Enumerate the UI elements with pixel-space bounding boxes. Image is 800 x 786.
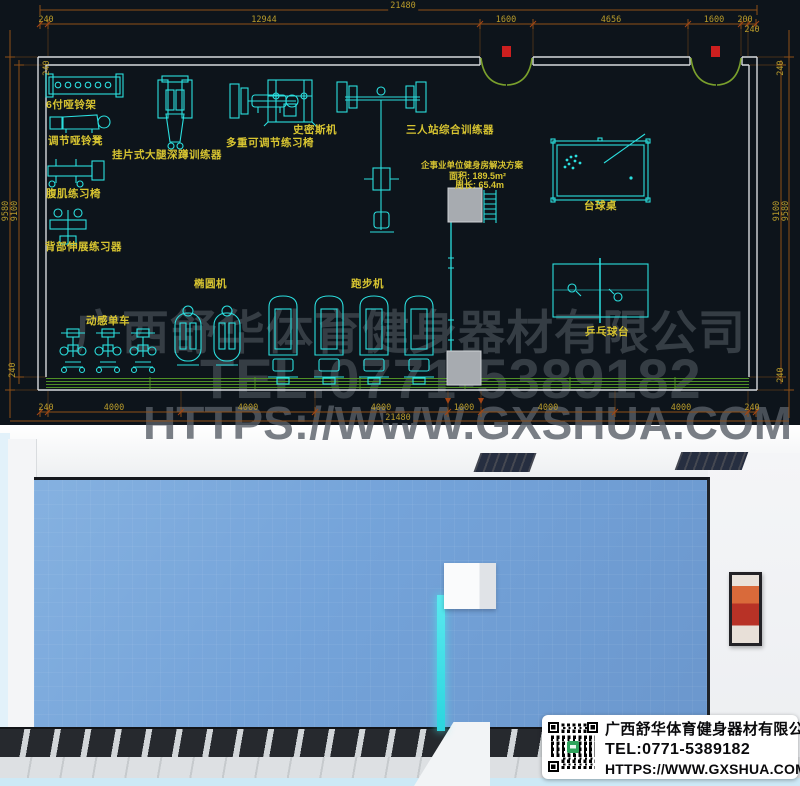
dim-top-4: 1600 [704, 15, 724, 25]
dim-bottom-0: 240 [38, 403, 53, 413]
floor-plan-drawing [0, 0, 800, 425]
label-ab-chair: 腹肌练习椅 [46, 186, 101, 201]
plan-multi-adjustable-bench [230, 84, 298, 118]
company-tel: TEL:0771-5389182 [605, 741, 800, 759]
dim-bottom-2: 4000 [238, 403, 258, 413]
plan-adjustable-bench [50, 115, 110, 133]
company-info-card: 广西舒华体育健身器材有限公司 TEL:0771-5389182 HTTPS://… [542, 715, 798, 779]
render-view: 广西舒华体育健身器材有限公司 TEL:0771-5389182 HTTPS://… [0, 425, 800, 786]
door-leaf-arcs [481, 58, 741, 85]
plan-ab-chair [48, 159, 104, 187]
plan-pingpong-table [553, 258, 648, 323]
dim-right-wall-bottom: 240 [776, 355, 786, 395]
render-bottom-band [0, 778, 800, 786]
render-door-panel-1 [474, 453, 537, 472]
walls [38, 57, 757, 390]
dim-bottom-3: 4000 [371, 403, 391, 413]
label-smith-machine: 史密斯机 [293, 122, 337, 137]
dim-top-1: 12944 [251, 15, 277, 25]
render-wall-tv [729, 572, 762, 646]
label-spin-bike: 动感单车 [86, 313, 130, 328]
door-marker-1 [502, 46, 511, 57]
dim-left-wall-bottom: 240 [8, 350, 18, 390]
equipment-linework [46, 74, 650, 384]
company-name: 广西舒华体育健身器材有限公司 [605, 718, 800, 739]
label-treadmill: 跑步机 [351, 276, 384, 291]
window-wall-hatch [46, 377, 749, 389]
label-dumbbell-rack: 6付哑铃架 [46, 97, 96, 112]
qr-code [548, 722, 598, 772]
dim-bottom-5: 4000 [538, 403, 558, 413]
label-pingpong-table: 乒乓球台 [585, 324, 629, 339]
plan-spin-bikes [60, 329, 156, 373]
dim-bottom-4: 1000 [454, 403, 474, 413]
door-marker-2 [711, 46, 720, 57]
plan-squat-trainer [158, 76, 192, 149]
label-squat-trainer: 挂片式大腿深蹲训练器 [112, 147, 222, 162]
label-back-extension: 背部伸展练习器 [45, 239, 122, 254]
plan-treadmills [268, 296, 434, 384]
plan-column-box [448, 188, 482, 222]
company-url: HTTPS://WWW.GXSHUA.COM [605, 761, 800, 777]
plan-ellipticals [175, 306, 240, 365]
plan-dumbbell-rack [46, 74, 123, 97]
dim-total-top: 21480 [388, 1, 418, 11]
dim-top-0: 240 [38, 15, 53, 25]
render-glow-divider [437, 595, 445, 731]
render-blue-floor [34, 477, 710, 729]
gym-plan-page: 广西舒华体育健身器材有限公司 TEL:0771-5389182 HTTPS://… [0, 0, 800, 786]
plan-column-box-2 [447, 351, 481, 385]
plan-smith-machine [264, 80, 316, 126]
dim-left-wall-top: 240 [42, 48, 52, 88]
floor-plan: 6付哑铃架 调节哑铃凳 腹肌练习椅 背部伸展练习器 挂片式大腿深蹲训练器 多重可… [0, 0, 800, 425]
render-column [444, 563, 496, 609]
plan-three-station-trainer [337, 82, 426, 232]
dim-left-inner: 9100 [10, 191, 20, 231]
label-adjustable-dumbbell-bench: 调节哑铃凳 [48, 133, 103, 148]
dim-top-3: 4656 [601, 15, 621, 25]
dim-right-wall-top: 240 [776, 48, 786, 88]
dim-bottom-1: 4000 [104, 403, 124, 413]
render-door-panel-2 [675, 452, 749, 470]
dim-top-2: 1600 [496, 15, 516, 25]
label-elliptical: 椭圆机 [194, 276, 227, 291]
plan-pool-table [551, 134, 650, 203]
label-pool-table: 台球桌 [584, 198, 617, 213]
dim-top-6: 240 [744, 25, 759, 35]
solution-perimeter: 周长: 65.4m [455, 178, 504, 191]
label-multi-adjustable-bench: 多重可调节练习椅 [226, 135, 314, 150]
dim-right-outer: 9580 [781, 191, 791, 231]
dim-total-bottom: 21480 [383, 413, 413, 423]
dim-bottom-7: 240 [744, 403, 759, 413]
dim-bottom-6: 4000 [671, 403, 691, 413]
dimension-lines [5, 5, 794, 421]
dim-top-5: 200 [737, 15, 752, 25]
label-three-station: 三人站综合训练器 [406, 122, 494, 137]
